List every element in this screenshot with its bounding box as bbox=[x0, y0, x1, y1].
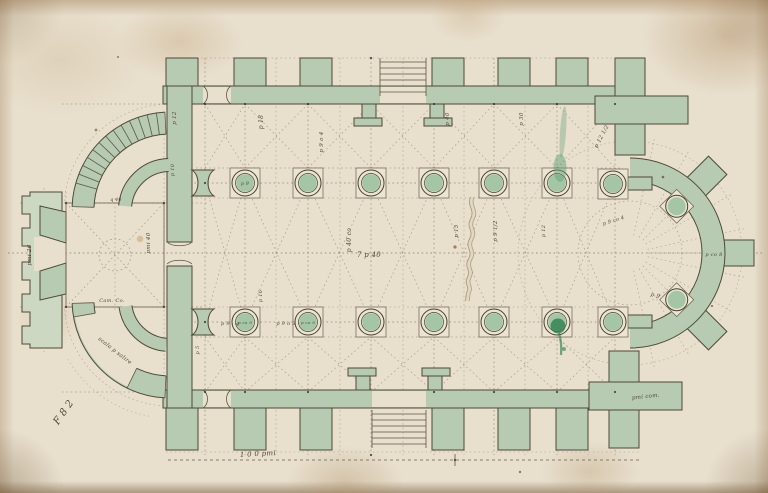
grid-dot bbox=[307, 391, 309, 393]
colonnade-columns bbox=[230, 168, 694, 337]
annotation: p 15 bbox=[454, 224, 460, 238]
grid-dot bbox=[493, 391, 495, 393]
column bbox=[362, 174, 380, 192]
column bbox=[668, 291, 686, 309]
grid-dot bbox=[433, 391, 435, 393]
column bbox=[604, 313, 622, 331]
south-buttress bbox=[498, 408, 530, 450]
north-buttress bbox=[300, 58, 332, 86]
grid-dot bbox=[204, 103, 206, 105]
annotation: p 16 bbox=[258, 289, 264, 302]
annotation: p 9 bbox=[650, 292, 661, 300]
south-buttress bbox=[300, 408, 332, 450]
southwest-inner-curved-wall bbox=[125, 306, 166, 345]
annotation: p 9 o 4 bbox=[319, 131, 325, 152]
grid-dot bbox=[204, 391, 206, 393]
ink-speck bbox=[117, 56, 119, 58]
grid-dot bbox=[614, 103, 616, 105]
column bbox=[425, 174, 443, 192]
ink-speck bbox=[453, 245, 456, 248]
grid-dot bbox=[307, 103, 309, 105]
grid-dot bbox=[163, 202, 165, 204]
ink-speck bbox=[519, 471, 521, 473]
ink-speck bbox=[662, 176, 665, 179]
stair-pier bbox=[428, 376, 442, 390]
grid-dot bbox=[370, 57, 372, 59]
annotation: p 10 bbox=[170, 163, 176, 176]
green-paint-blot bbox=[551, 319, 566, 334]
bay-diagonal bbox=[205, 104, 245, 168]
annotation: Cam. Co. bbox=[99, 298, 125, 304]
annotation: p 9 bbox=[241, 181, 249, 187]
annotation: p 12 1/2 bbox=[594, 124, 611, 149]
stair-pier-foot bbox=[348, 368, 376, 376]
green-paint-blot bbox=[562, 347, 566, 351]
south-entrance-opening bbox=[372, 391, 426, 407]
north-buttress bbox=[432, 58, 464, 86]
annotation: p 30 bbox=[519, 112, 525, 126]
ink-speck bbox=[95, 129, 98, 132]
annotation: p 9 1/2 bbox=[493, 220, 499, 242]
bay-diagonal bbox=[205, 183, 245, 322]
column bbox=[485, 174, 503, 192]
stair-pier-foot bbox=[422, 368, 450, 376]
grid-dot bbox=[163, 306, 165, 308]
annotation: p co 8 bbox=[705, 252, 722, 258]
annotation: p 40 bbox=[445, 112, 451, 126]
church-floor-plan-drawing: p 18 p 9 o 4 p 12 p 40 co 7 p 40 p 15 p … bbox=[0, 0, 768, 493]
north-buttress bbox=[498, 58, 530, 86]
scale-label: 1 0 0 pmi bbox=[240, 449, 276, 459]
grid-dot bbox=[614, 391, 616, 393]
grid-dot bbox=[65, 202, 67, 204]
annotation: p 18 bbox=[258, 115, 265, 130]
grid-dot bbox=[204, 182, 206, 184]
northeast-cross-pier-arm bbox=[595, 96, 688, 124]
annotation: p co 9 bbox=[238, 320, 252, 325]
west-inner-wall bbox=[167, 266, 192, 408]
folio-mark: F 8 2 bbox=[51, 398, 76, 428]
green-paint-drip bbox=[559, 333, 561, 355]
column bbox=[604, 175, 622, 193]
bay-diagonal bbox=[205, 183, 245, 322]
column bbox=[668, 197, 686, 215]
annotation: q 40 bbox=[110, 197, 121, 203]
manuscript-paper: p 18 p 9 o 4 p 12 p 40 co 7 p 40 p 15 p … bbox=[0, 0, 768, 493]
stair-pier bbox=[356, 376, 370, 390]
walls bbox=[22, 58, 754, 450]
column bbox=[362, 313, 380, 331]
north-buttress bbox=[556, 58, 588, 86]
annotation: p 9 co 4 bbox=[602, 215, 625, 228]
north-buttress bbox=[234, 58, 266, 86]
annotation: p 9 - q bbox=[221, 321, 239, 327]
south-buttress bbox=[556, 408, 588, 450]
annotation: 7 p 40 bbox=[357, 251, 381, 259]
bay-diagonal bbox=[205, 104, 245, 168]
annotation: p 9 o 3 - bbox=[276, 321, 299, 327]
column bbox=[485, 313, 503, 331]
annotation: p 12 bbox=[172, 111, 178, 125]
grid-dot bbox=[244, 103, 246, 105]
annotation: p 12 bbox=[541, 225, 547, 237]
annotation: p 5 bbox=[195, 346, 201, 355]
annotation: pmi 26 bbox=[27, 244, 33, 265]
north-buttress bbox=[166, 58, 198, 86]
south-buttress bbox=[166, 408, 198, 450]
wall-stub bbox=[626, 315, 652, 328]
grid-dot bbox=[454, 459, 456, 461]
south-buttress bbox=[432, 408, 464, 450]
grid-dot bbox=[556, 391, 558, 393]
south-buttress bbox=[234, 408, 266, 450]
grid-dot bbox=[204, 321, 206, 323]
grid-dot bbox=[370, 454, 372, 456]
paper-stain-spot bbox=[137, 236, 143, 242]
green-paint-smudge bbox=[554, 154, 567, 182]
stair-pier bbox=[430, 104, 444, 118]
column bbox=[425, 313, 443, 331]
grid-dot bbox=[493, 103, 495, 105]
green-paint-smudge bbox=[558, 106, 568, 158]
grid-dot bbox=[65, 306, 67, 308]
grid-dot bbox=[244, 391, 246, 393]
stair-pier-foot bbox=[354, 118, 382, 126]
door-jamb-moulding bbox=[167, 242, 192, 264]
column bbox=[299, 174, 317, 192]
annotation: p 40 co bbox=[346, 228, 353, 252]
annotation: p co 9 bbox=[301, 320, 315, 325]
south-entrance-stairs bbox=[372, 410, 426, 448]
northwest-inner-curved-wall bbox=[125, 165, 168, 206]
grid-dot bbox=[556, 103, 558, 105]
north-entrance-opening bbox=[380, 87, 426, 103]
wall-stub bbox=[626, 177, 652, 190]
grid-dot bbox=[433, 103, 435, 105]
annotation: pmi 40 bbox=[146, 232, 152, 253]
stair-pier bbox=[362, 104, 376, 118]
ink-speck bbox=[711, 305, 713, 307]
